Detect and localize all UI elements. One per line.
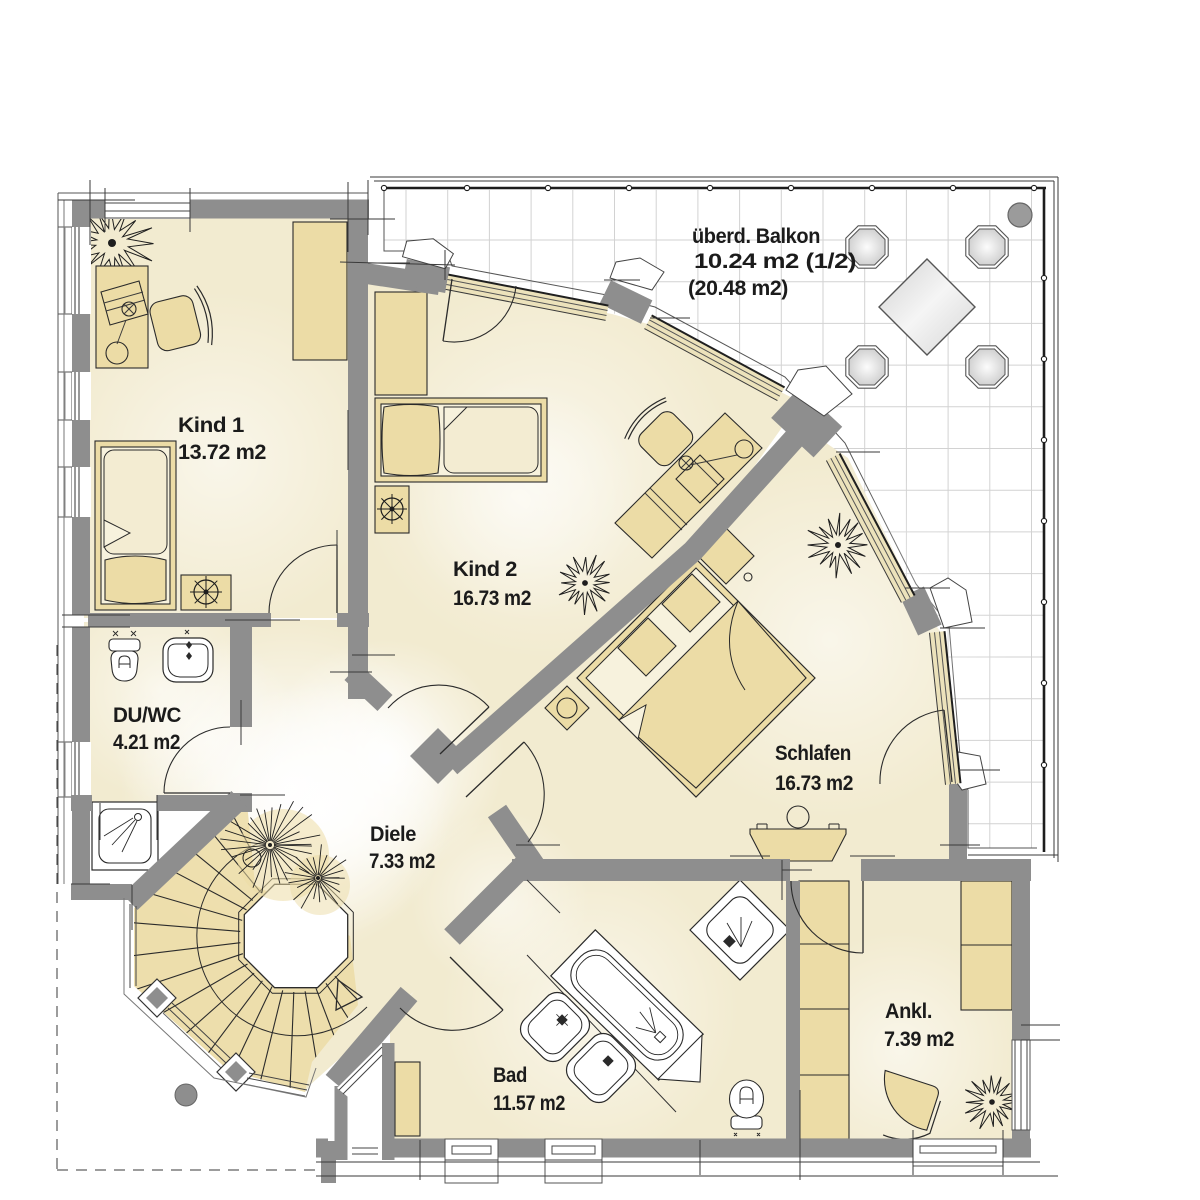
svg-text:Kind 2: Kind 2	[453, 558, 517, 581]
svg-text:16.73 m2: 16.73 m2	[453, 587, 531, 610]
svg-text:16.73 m2: 16.73 m2	[775, 772, 853, 795]
svg-text:7.33 m2: 7.33 m2	[369, 850, 435, 873]
svg-text:DU/WC: DU/WC	[113, 704, 181, 727]
svg-text:überd. Balkon: überd. Balkon	[692, 225, 820, 248]
svg-text:(20.48 m2): (20.48 m2)	[688, 277, 788, 300]
svg-text:Kind 1: Kind 1	[178, 414, 245, 437]
svg-text:13.72 m2: 13.72 m2	[178, 441, 266, 464]
svg-text:7.39 m2: 7.39 m2	[884, 1028, 954, 1051]
svg-text:10.24 m2 (1/2): 10.24 m2 (1/2)	[694, 250, 856, 273]
svg-text:Ankl.: Ankl.	[885, 1000, 932, 1023]
svg-text:Bad: Bad	[493, 1064, 527, 1087]
svg-text:4.21 m2: 4.21 m2	[113, 731, 180, 754]
svg-text:Schlafen: Schlafen	[775, 742, 851, 765]
svg-text:Diele: Diele	[370, 823, 416, 846]
svg-text:11.57 m2: 11.57 m2	[493, 1092, 565, 1115]
